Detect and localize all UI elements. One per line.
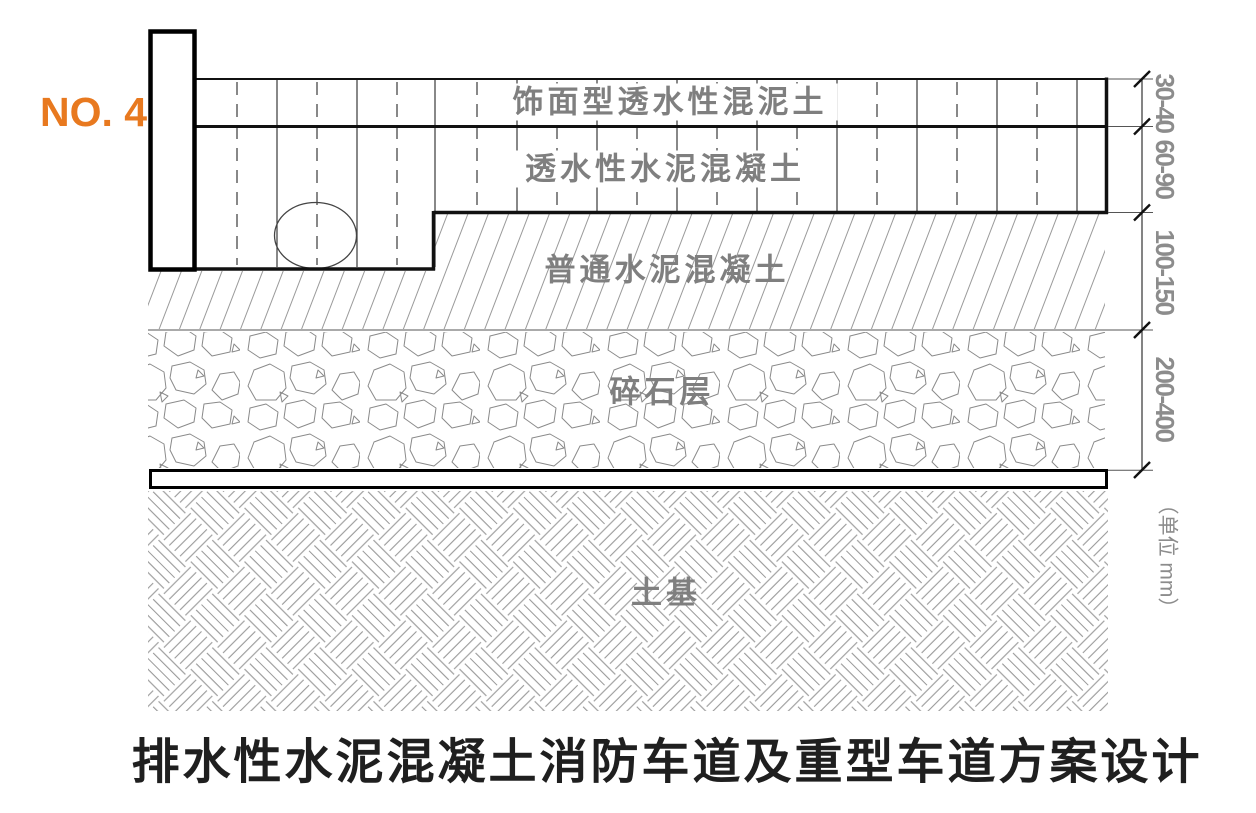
dimension-label-layer1: 30-40	[1152, 74, 1178, 133]
dimension-unit-note: （单位 mm）	[1157, 494, 1178, 619]
drawing-title: 排水性水泥混凝土消防车道及重型车道方案设计	[131, 739, 1202, 787]
layer-label-decorative-permeable-concrete: 饰面型透水性混泥土	[503, 84, 838, 121]
layer-label-ordinary-cement-concrete: 普通水泥混凝土	[545, 255, 790, 286]
dimension-lines	[1108, 71, 1153, 478]
layer-label-permeable-cement-concrete: 透水性水泥混凝土	[515, 151, 815, 188]
dimension-label-layer2: 60-90	[1152, 140, 1178, 199]
drain-pipe-ellipse	[275, 203, 357, 269]
layer-label-subgrade: 土基	[631, 578, 701, 609]
drawing-sheet: NO. 4 饰面型透水性混泥土 透水性水泥混凝土 普通水泥混凝土 碎石层 土基 …	[0, 0, 1256, 813]
geotextile-band	[151, 471, 1107, 488]
layer-label-crushed-stone: 碎石层	[610, 377, 715, 408]
subgrade-weave-area	[148, 491, 1108, 711]
dimension-label-layer3: 100-150	[1152, 230, 1178, 315]
dimension-label-layer4: 200-400	[1152, 357, 1178, 442]
sheet-number-badge: NO. 4	[40, 92, 147, 133]
curb-block	[151, 32, 195, 270]
